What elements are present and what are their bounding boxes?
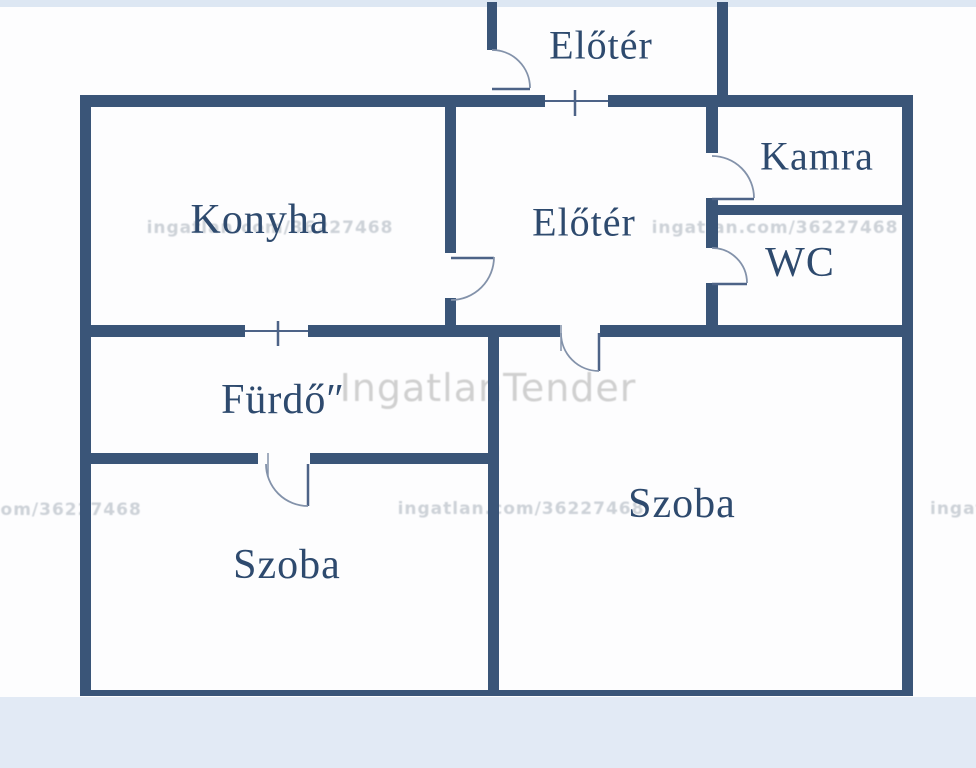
room-label-bathroom: Fürdő″ (221, 376, 345, 424)
room-label-vestibule: Előtér (549, 22, 653, 69)
room-label-kitchen: Konyha (191, 196, 330, 244)
room-label-wc: WC (765, 239, 835, 287)
door-arc-kitchen (451, 257, 494, 300)
room-label-room-left: Szoba (233, 541, 341, 589)
door-arc-wc (712, 248, 747, 283)
room-label-pantry: Kamra (760, 133, 874, 180)
door-arc-hall-room (561, 333, 599, 371)
door-symbols-layer (0, 0, 976, 768)
room-label-room-right: Szoba (628, 480, 736, 528)
room-label-hall: Előtér (532, 199, 636, 246)
door-arc-pantry (712, 156, 754, 198)
door-arc-bathroom (266, 464, 308, 506)
door-arc-vestibule (492, 50, 530, 88)
floor-plan: ingatlan.com/36227468 ingatlan.com/36227… (0, 0, 976, 768)
